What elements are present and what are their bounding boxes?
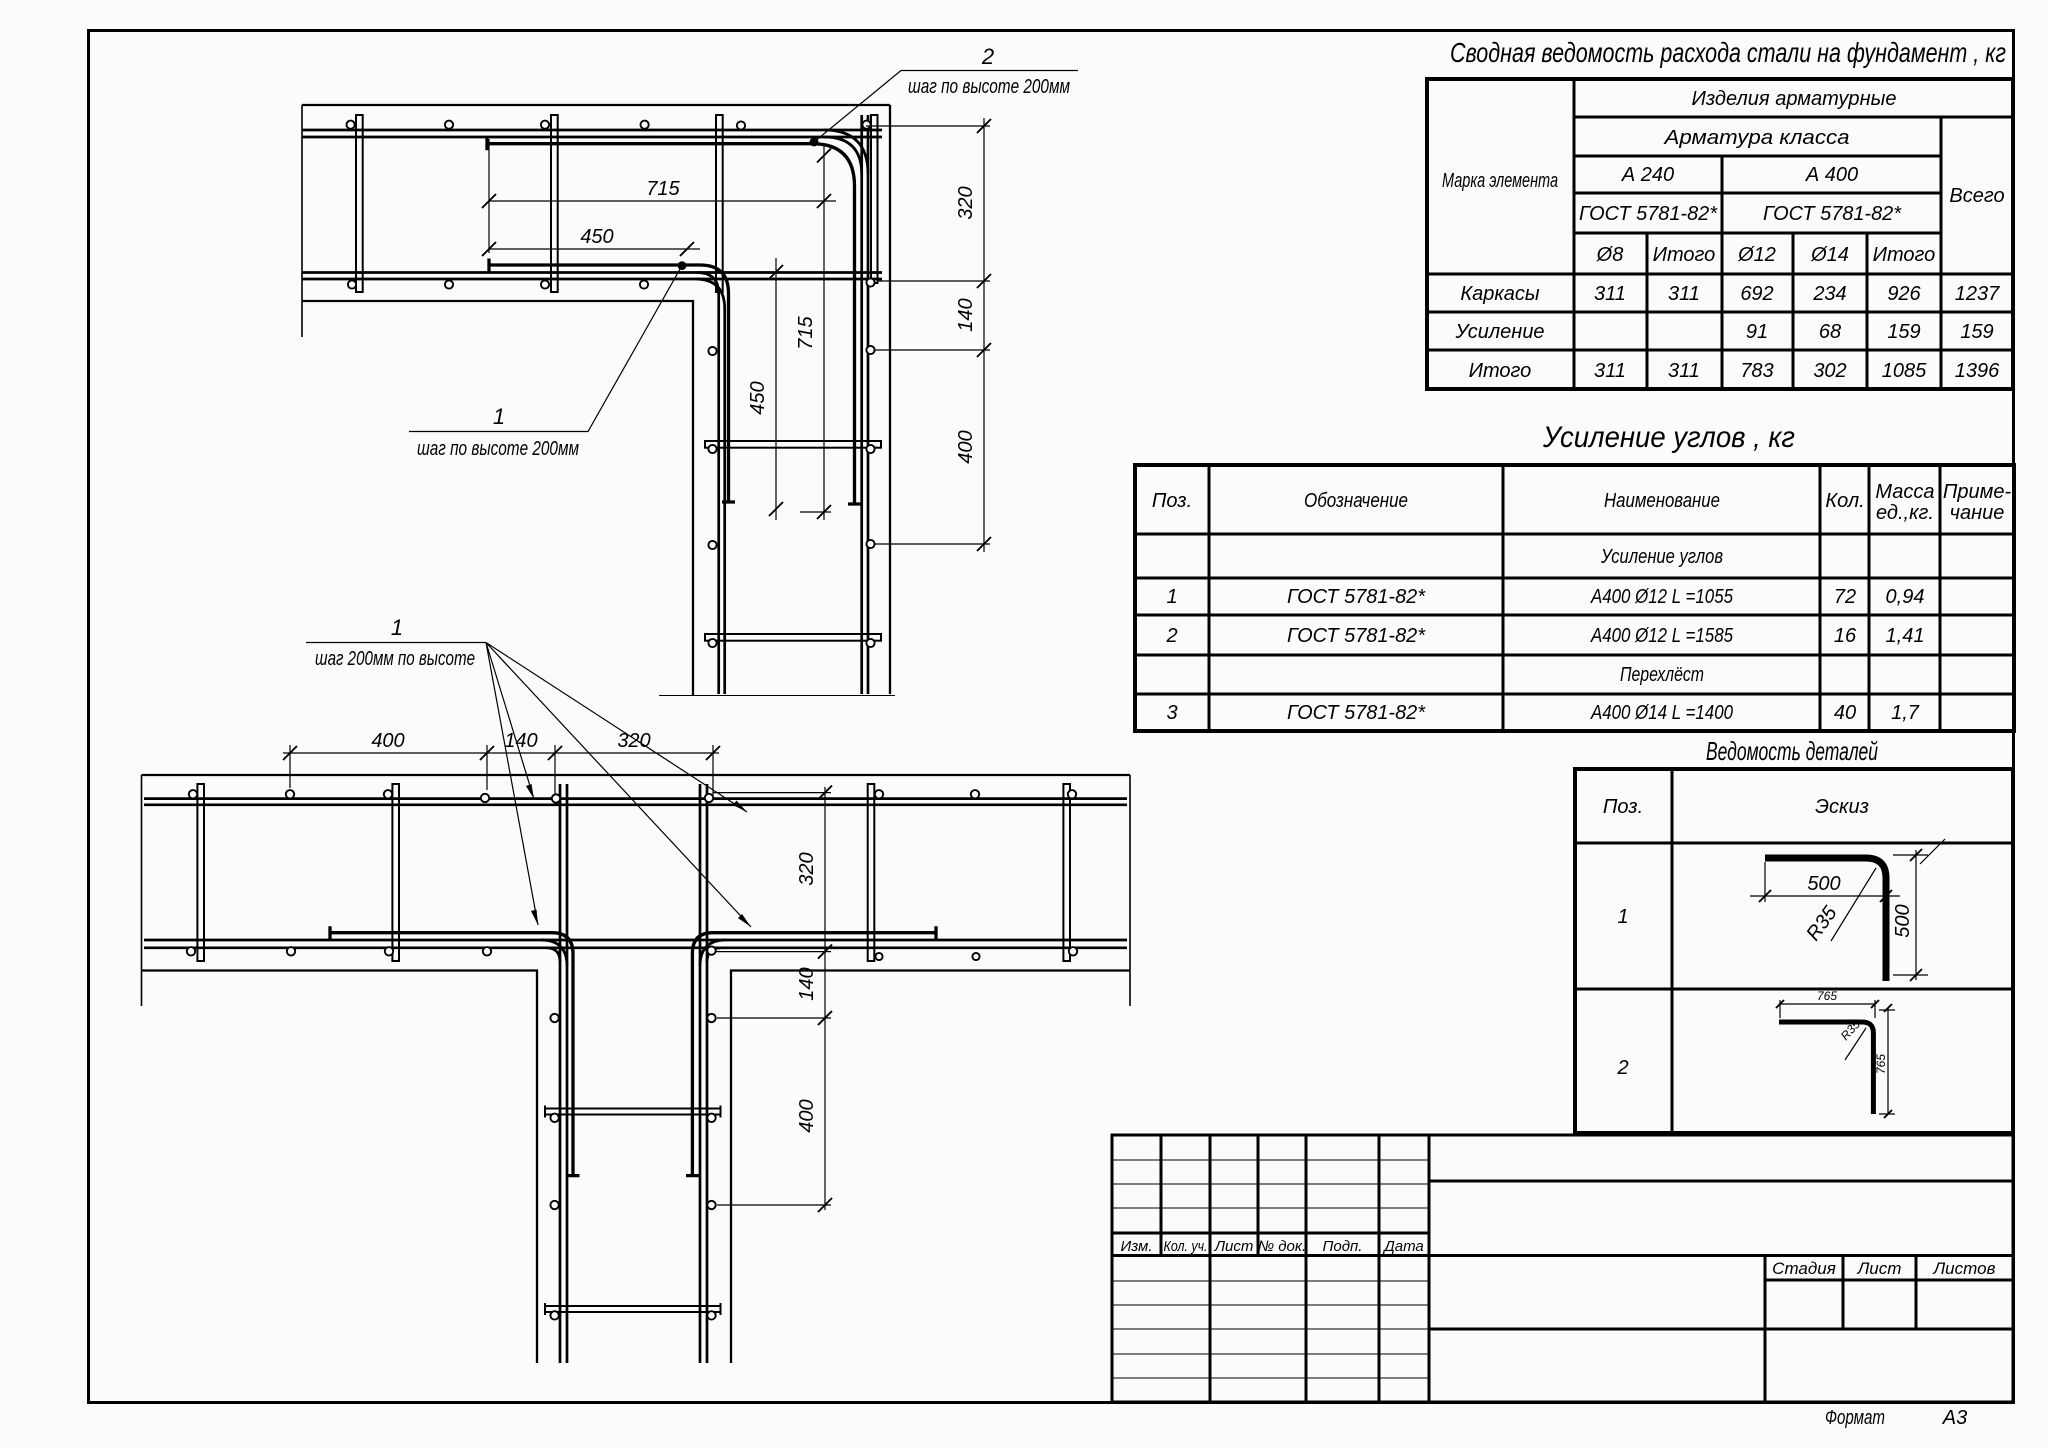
svg-text:2: 2 [1165,625,1177,647]
svg-text:450: 450 [580,226,613,248]
svg-text:40: 40 [1834,702,1856,724]
svg-text:шаг по высоте 200мм: шаг по высоте 200мм [417,438,579,460]
svg-text:ГОСТ 5781-82*: ГОСТ 5781-82* [1287,702,1426,724]
svg-text:ГОСТ 5781-82*: ГОСТ 5781-82* [1579,203,1718,225]
svg-text:Итого: Итого [1469,360,1532,382]
svg-text:Ø8: Ø8 [1596,244,1624,266]
svg-text:Усиление: Усиление [1454,321,1544,343]
svg-text:3: 3 [1166,702,1177,724]
svg-text:чание: чание [1950,502,2005,524]
svg-text:ед.,кг.: ед.,кг. [1876,502,1934,524]
svg-text:140: 140 [504,730,537,752]
svg-text:Сводная ведомость расхода стал: Сводная ведомость расхода стали на фунда… [1450,37,2006,68]
svg-text:Изм.: Изм. [1121,1238,1153,1255]
svg-text:Итого: Итого [1873,244,1936,266]
svg-text:2: 2 [981,44,994,69]
svg-text:400: 400 [796,1099,818,1132]
svg-text:1: 1 [391,615,403,640]
svg-text:Кол. уч.: Кол. уч. [1164,1238,1208,1255]
svg-text:311: 311 [1668,360,1700,382]
svg-text:ГОСТ 5781-82*: ГОСТ 5781-82* [1287,586,1426,608]
svg-text:783: 783 [1740,360,1773,382]
svg-text:692: 692 [1740,283,1773,305]
svg-text:1085: 1085 [1882,360,1927,382]
svg-text:Наименование: Наименование [1604,490,1720,512]
svg-text:0,94: 0,94 [1886,586,1925,608]
svg-text:1,41: 1,41 [1886,625,1925,647]
svg-text:72: 72 [1834,586,1856,608]
svg-text:311: 311 [1594,283,1626,305]
svg-text:320: 320 [617,730,650,752]
svg-text:Итого: Итого [1653,244,1716,266]
svg-text:Масса: Масса [1875,481,1934,503]
svg-text:шаг 200мм по высоте: шаг 200мм по высоте [315,648,475,670]
svg-text:А400 Ø14 L =1400: А400 Ø14 L =1400 [1590,702,1733,724]
svg-text:320: 320 [796,852,818,885]
svg-text:Обозначение: Обозначение [1304,490,1408,512]
svg-text:ГОСТ 5781-82*: ГОСТ 5781-82* [1287,625,1426,647]
svg-text:Поз.: Поз. [1152,490,1192,512]
svg-text:А 240: А 240 [1621,164,1674,186]
svg-text:140: 140 [955,298,977,331]
svg-text:1: 1 [1166,586,1177,608]
svg-text:450: 450 [747,381,769,414]
svg-text:234: 234 [1812,283,1846,305]
svg-text:16: 16 [1834,625,1857,647]
svg-text:Поз.: Поз. [1603,796,1643,818]
svg-text:Усиление углов: Усиление углов [1600,546,1723,568]
svg-text:Каркасы: Каркасы [1460,283,1540,305]
svg-text:1,7: 1,7 [1891,702,1920,724]
svg-text:311: 311 [1668,283,1700,305]
svg-text:А3: А3 [1942,1407,1967,1429]
svg-text:302: 302 [1813,360,1846,382]
svg-text:926: 926 [1887,283,1921,305]
svg-text:159: 159 [1887,321,1920,343]
svg-text:ГОСТ 5781-82*: ГОСТ 5781-82* [1763,203,1902,225]
svg-text:1396: 1396 [1955,360,2000,382]
svg-text:159: 159 [1960,321,1993,343]
svg-text:Формат: Формат [1825,1407,1885,1429]
svg-text:1: 1 [1617,906,1628,928]
svg-text:Лист: Лист [1214,1238,1254,1255]
svg-text:765: 765 [1817,989,1837,1003]
svg-text:91: 91 [1746,321,1768,343]
svg-text:Ø12: Ø12 [1737,244,1776,266]
svg-text:А400 Ø12 L =1585: А400 Ø12 L =1585 [1590,625,1734,647]
svg-text:1237: 1237 [1955,283,2000,305]
svg-text:А400 Ø12 L =1055: А400 Ø12 L =1055 [1590,586,1734,608]
svg-text:Дата: Дата [1382,1238,1424,1255]
svg-text:Листов: Листов [1933,1259,1996,1278]
svg-text:320: 320 [955,186,977,219]
svg-text:Эскиз: Эскиз [1815,796,1869,818]
svg-text:68: 68 [1819,321,1841,343]
svg-text:765: 765 [1874,1054,1888,1074]
svg-text:Марка элемента: Марка элемента [1442,170,1558,192]
svg-text:311: 311 [1594,360,1626,382]
svg-text:Подп.: Подп. [1323,1238,1363,1255]
svg-text:Ø14: Ø14 [1810,244,1849,266]
svg-text:№ док.: № док. [1258,1238,1306,1255]
svg-text:Изделия арматурные: Изделия арматурные [1692,88,1897,110]
svg-text:715: 715 [646,178,680,200]
svg-text:715: 715 [795,315,817,349]
svg-text:Стадия: Стадия [1772,1259,1836,1278]
svg-text:Приме-: Приме- [1943,481,2012,503]
svg-text:Кол.: Кол. [1825,490,1864,512]
svg-text:Усиление углов , кг: Усиление углов , кг [1542,421,1795,454]
svg-text:500: 500 [1892,904,1914,937]
svg-text:А 400: А 400 [1805,164,1858,186]
svg-text:2: 2 [1616,1057,1628,1079]
svg-text:Всего: Всего [1949,185,2004,207]
svg-text:140: 140 [796,967,818,1000]
svg-text:Перехлёст: Перехлёст [1620,664,1704,686]
svg-text:Арматура класса: Арматура класса [1663,127,1849,149]
svg-text:Ведомость деталей: Ведомость деталей [1706,736,1878,766]
svg-text:1: 1 [493,404,505,429]
svg-text:500: 500 [1807,873,1840,895]
svg-text:400: 400 [955,430,977,463]
svg-text:400: 400 [371,730,404,752]
svg-text:Лист: Лист [1857,1259,1902,1278]
svg-text:шаг по высоте 200мм: шаг по высоте 200мм [908,76,1070,98]
